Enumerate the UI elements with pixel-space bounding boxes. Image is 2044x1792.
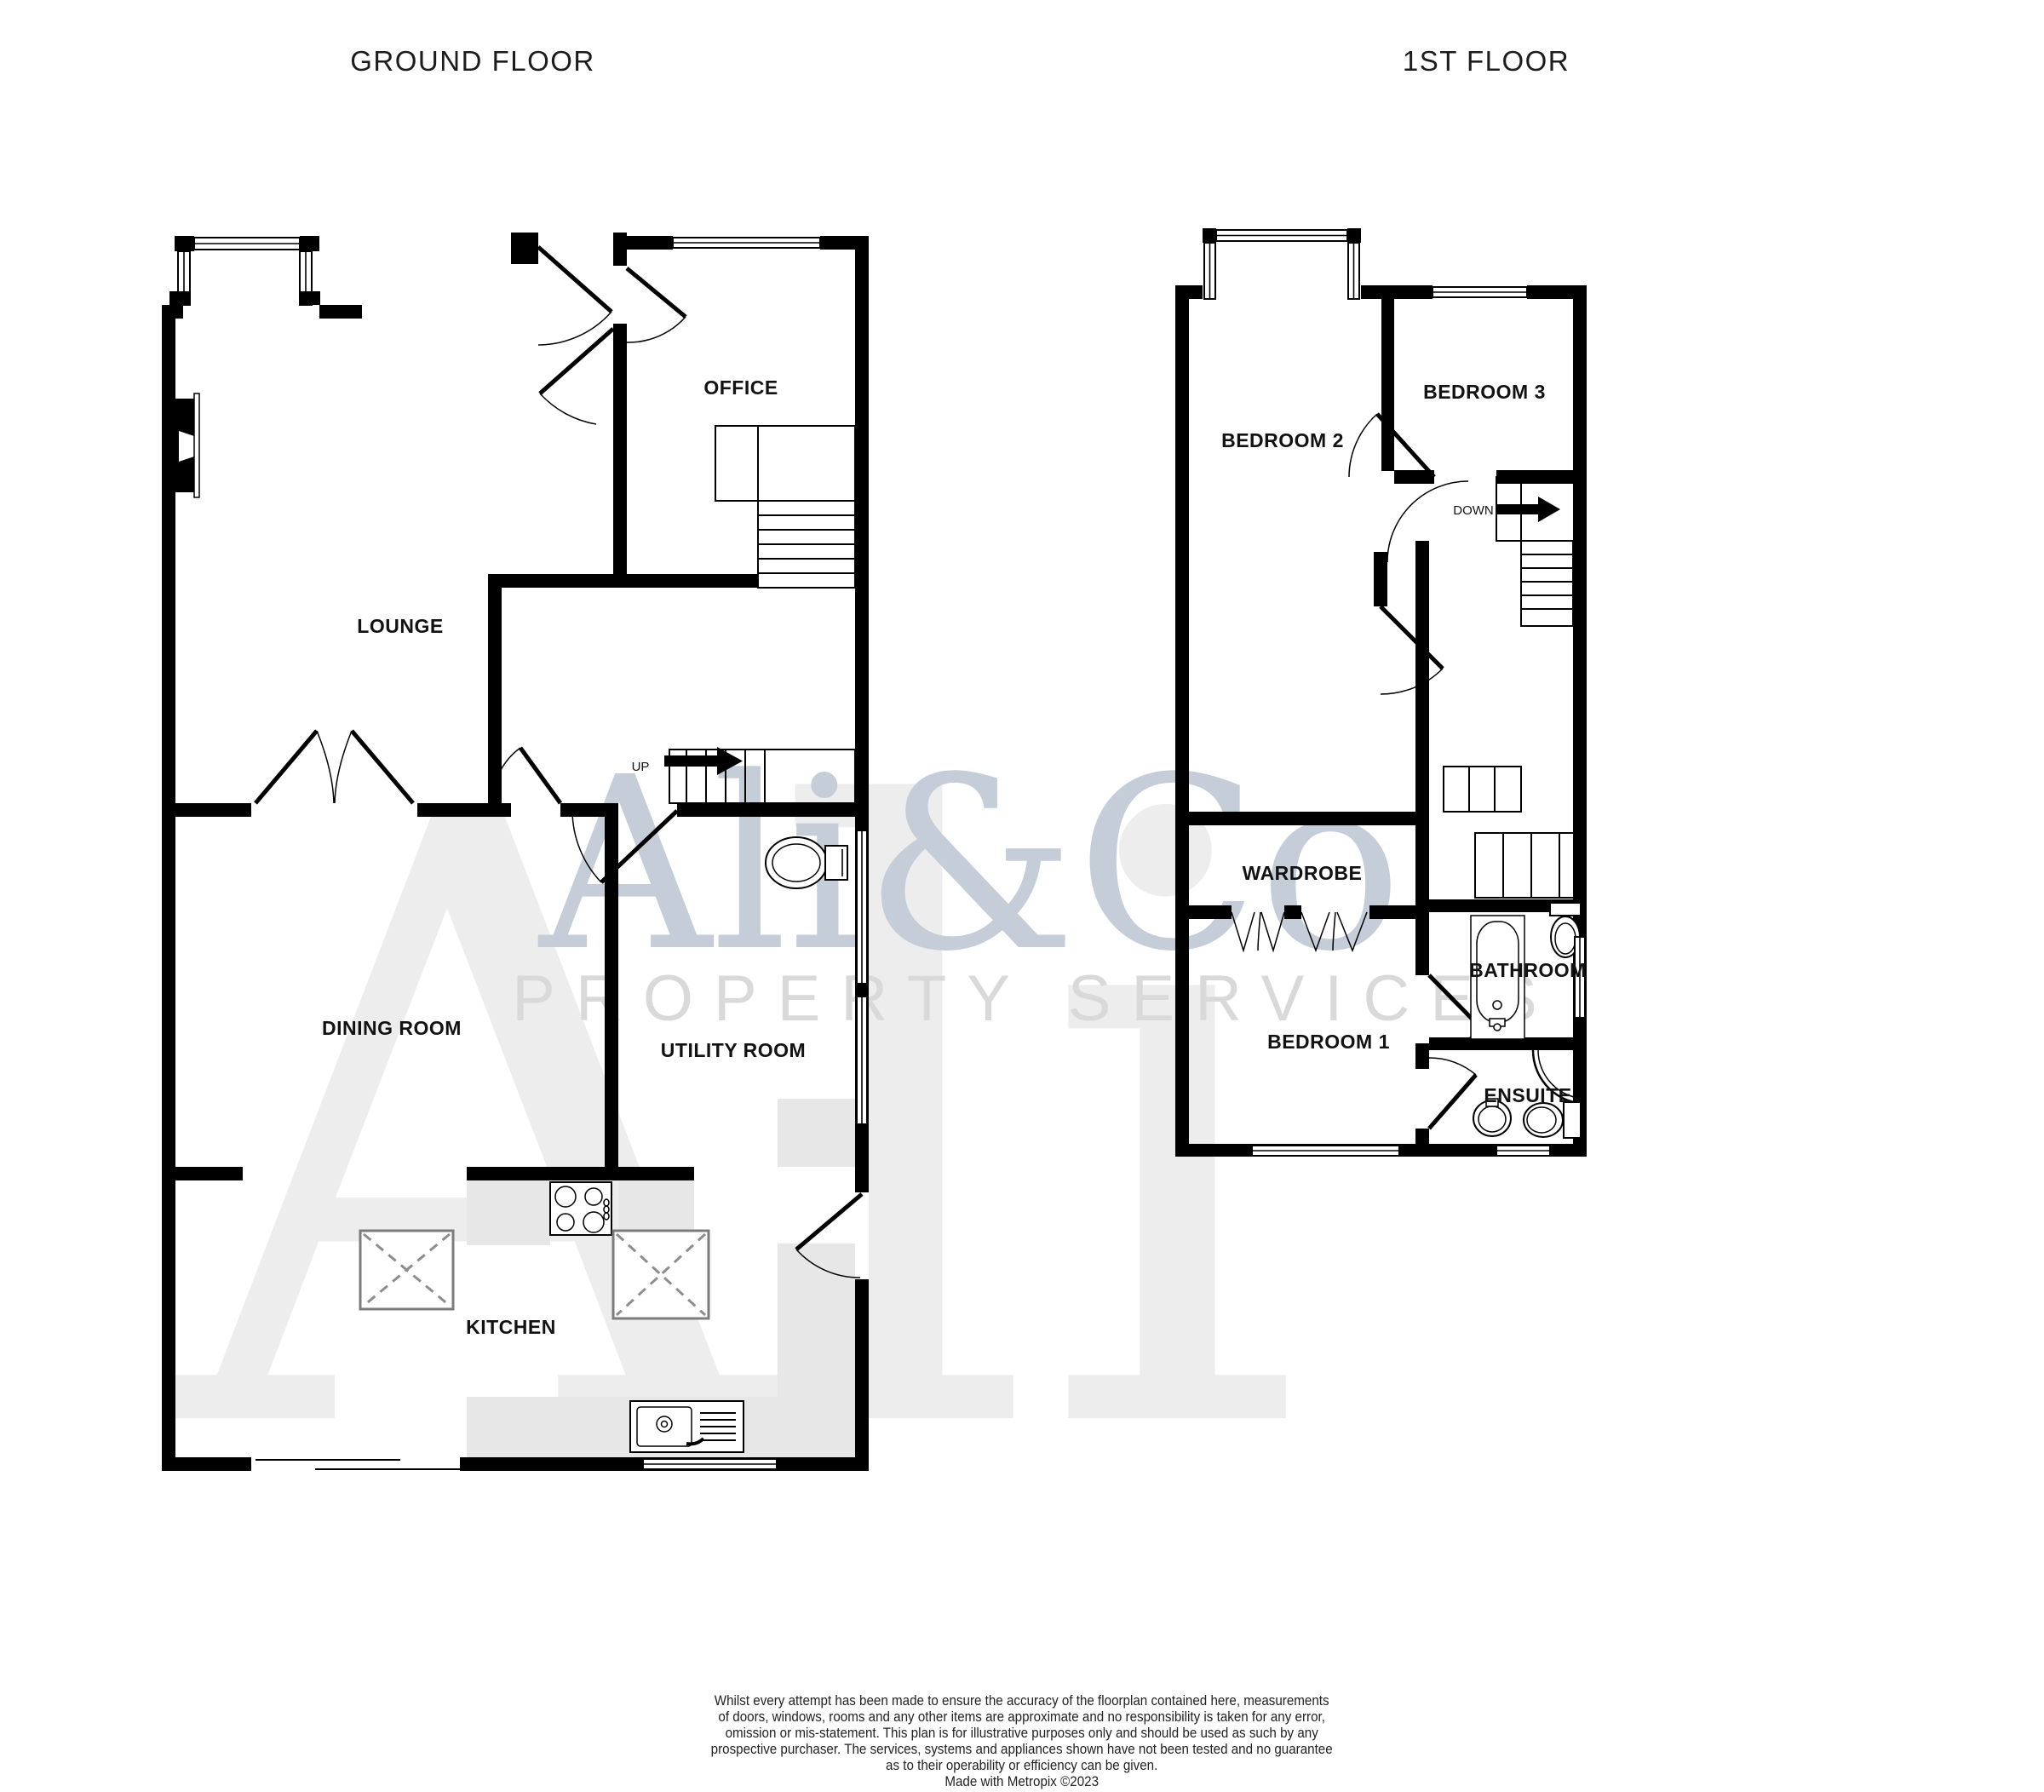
toilet-icon-utility: [766, 837, 847, 888]
ff-staircase: DOWN: [1444, 477, 1582, 898]
lounge-bottom-wall-right: [417, 803, 511, 817]
gf-left-wall: [162, 305, 175, 1471]
stairs-down-label: DOWN: [1453, 503, 1494, 518]
ff-top-wall-left: [1175, 285, 1203, 299]
entry-door-arc-2: [540, 393, 596, 424]
office-label: OFFICE: [703, 376, 778, 399]
office-door-leaf: [627, 268, 686, 317]
watermark-subtitle: PROPERTY SERVICES: [512, 962, 1557, 1035]
counter-right-column: [778, 1243, 855, 1401]
hob-icon: [550, 1182, 611, 1235]
utility-room-label: UTILITY ROOM: [661, 1039, 806, 1061]
hall-bottom-wall-mid: [560, 803, 618, 817]
bedroom3-label: BEDROOM 3: [1423, 381, 1546, 403]
ff-stair-flight-mid: [1444, 767, 1521, 812]
front-entry-doors: [511, 233, 613, 424]
entry-hinge-block: [511, 233, 538, 264]
office-left-wall: [613, 324, 627, 588]
office-top-wall-right: [820, 236, 869, 250]
dining-room-label: DINING ROOM: [322, 1017, 462, 1039]
ff-right-wall: [1573, 285, 1587, 1157]
stairs-up-label: UP: [632, 760, 650, 774]
disclaimer: Whilst every attempt has been made to en…: [711, 1693, 1333, 1789]
disclaimer-line-1: Whilst every attempt has been made to en…: [715, 1693, 1329, 1709]
ff-left-wall: [1175, 285, 1189, 1157]
bedroom2-bay-window: [1203, 228, 1361, 299]
down-arrow-icon: [1496, 497, 1560, 522]
kitchen-island-right: [613, 1231, 709, 1318]
bedroom2-label: BEDROOM 2: [1221, 429, 1344, 451]
stair-cupboard-large: [758, 426, 855, 501]
office-door-arc: [627, 317, 686, 342]
ensuite-door: [1429, 1058, 1476, 1129]
ground-floor-title: GROUND FLOOR: [350, 45, 595, 77]
ff-top-wall-right: [1527, 285, 1587, 299]
disclaimer-line-3: omission or mis-statement. This plan is …: [726, 1726, 1318, 1741]
bed1-right-wall-upper: [1415, 825, 1429, 975]
office-left-wall-top: [613, 233, 627, 266]
kitchen-top-wall: [467, 1167, 694, 1180]
ff-top-wall-mid: [1361, 285, 1433, 299]
utility-counter: [778, 1099, 855, 1167]
ff-stair-flight-low: [1475, 833, 1582, 898]
bed2-bed3-divider: [1381, 299, 1394, 471]
ensuite-label: ENSUITE: [1484, 1084, 1571, 1106]
kitchen-island-left: [360, 1231, 453, 1309]
bed2-door-stub: [1374, 552, 1387, 606]
sliding-patio-door: [251, 1457, 460, 1471]
disclaimer-line-2: of doors, windows, rooms and any other i…: [718, 1709, 1325, 1725]
gf-top-wall-left: [162, 305, 183, 319]
wardrobe-top-wall: [1189, 812, 1428, 825]
lounge-label: LOUNGE: [357, 615, 443, 637]
disclaimer-line-5: as to their operability or efficiency ca…: [886, 1758, 1157, 1773]
floorplan-canvas: Ali Ali&Co PROPERTY SERVICES: [0, 0, 2044, 1792]
gf-top-wall-right-of-bay: [319, 305, 362, 319]
sink-icon: [630, 1401, 744, 1452]
hall-top-wall: [488, 574, 758, 588]
lounge-bottom-wall-left: [162, 803, 251, 817]
bathroom-label: BATHROOM: [1469, 959, 1587, 981]
dining-kitchen-stub-wall: [162, 1167, 243, 1180]
kitchen-label: KITCHEN: [466, 1316, 556, 1338]
disclaimer-credit: Made with Metropix ©2023: [944, 1774, 1099, 1789]
stair-cupboard-small: [715, 426, 758, 501]
bed1-right-wall-lower: [1415, 1129, 1429, 1157]
floorplan-page: Ali Ali&Co PROPERTY SERVICES: [0, 0, 2044, 1792]
entry-door-leaf-2: [540, 329, 613, 393]
toilet-icon-ensuite: [1524, 1102, 1581, 1138]
wardrobe-label: WARDROBE: [1243, 862, 1363, 884]
entry-door-leaf-1: [538, 247, 611, 312]
counter-left-of-hob: [467, 1180, 550, 1245]
first-floor-title: 1ST FLOOR: [1403, 45, 1570, 77]
fireplace: [175, 393, 199, 497]
disclaimer-line-4: prospective purchaser. The services, sys…: [711, 1742, 1333, 1757]
utility-left-wall: [605, 817, 618, 1180]
bed1-right-wall-stub: [1415, 1043, 1429, 1069]
bedroom1-label: BEDROOM 1: [1267, 1031, 1390, 1053]
hall-bottom-wall-right: [677, 803, 869, 817]
lounge-bay-window: [169, 236, 320, 305]
